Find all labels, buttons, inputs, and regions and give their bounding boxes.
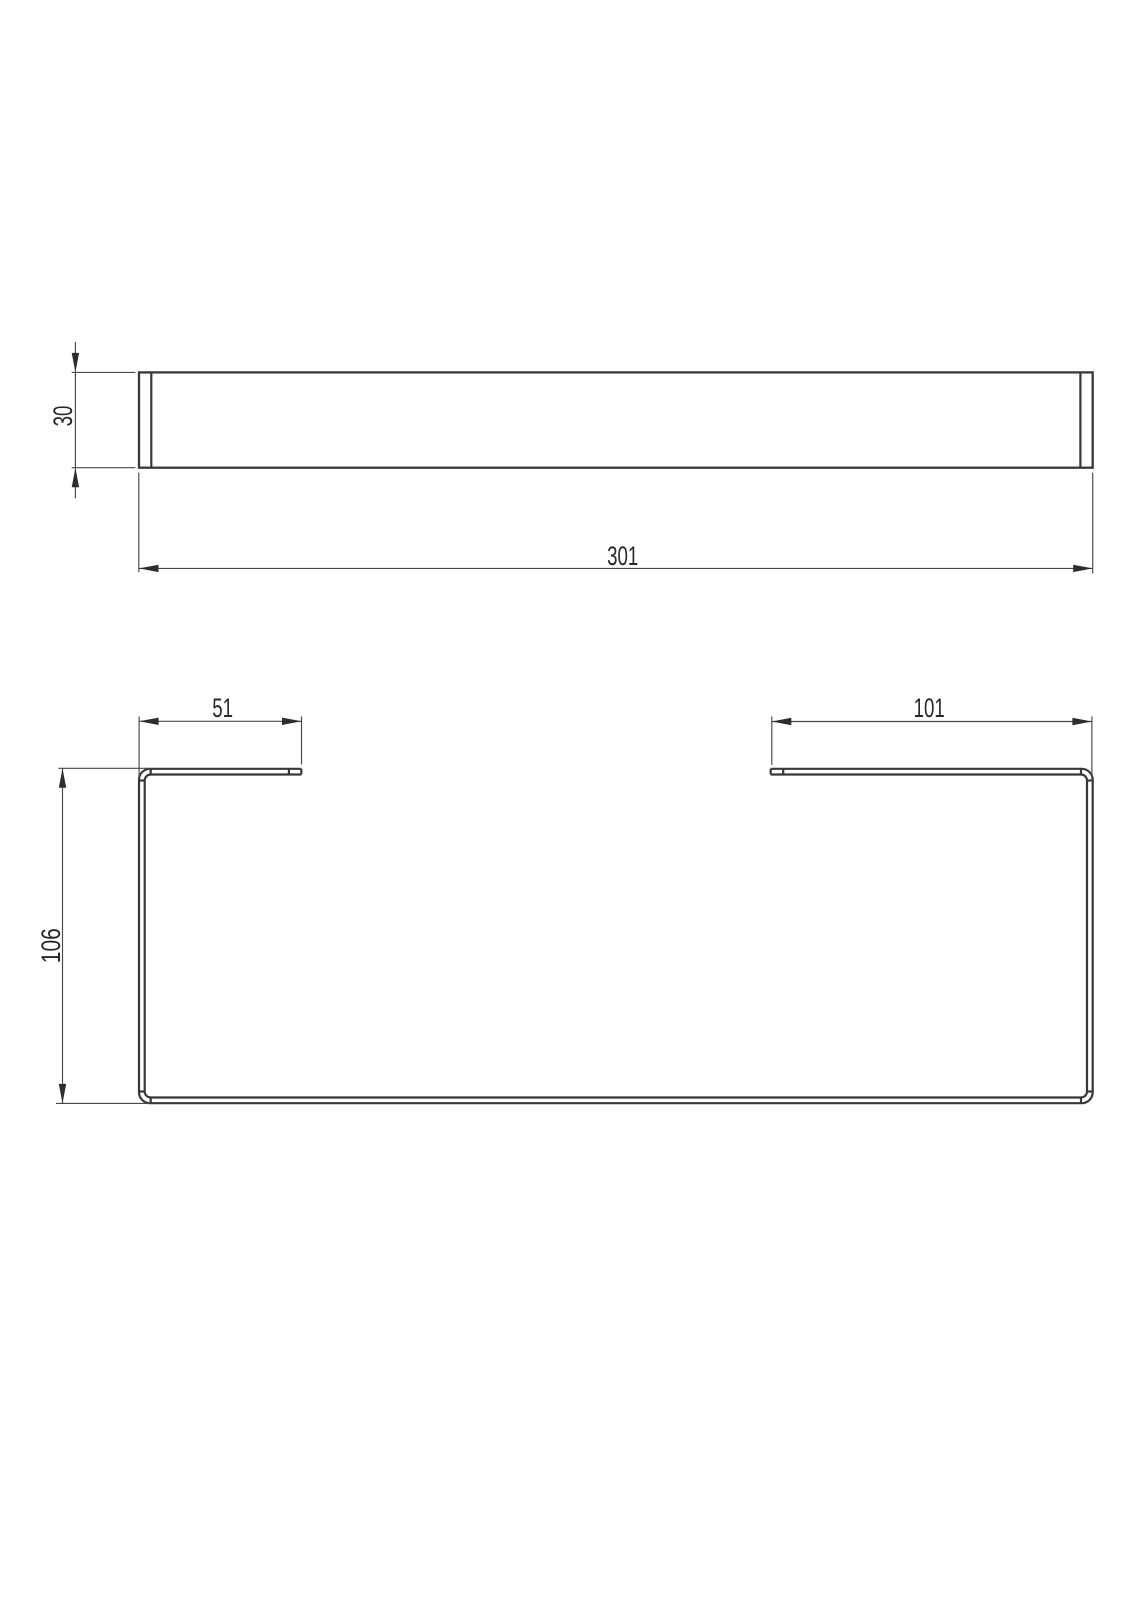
svg-text:106: 106 [36, 928, 66, 963]
svg-text:30: 30 [48, 406, 78, 427]
svg-text:51: 51 [212, 693, 233, 723]
svg-text:101: 101 [914, 693, 945, 723]
svg-text:301: 301 [607, 541, 638, 571]
